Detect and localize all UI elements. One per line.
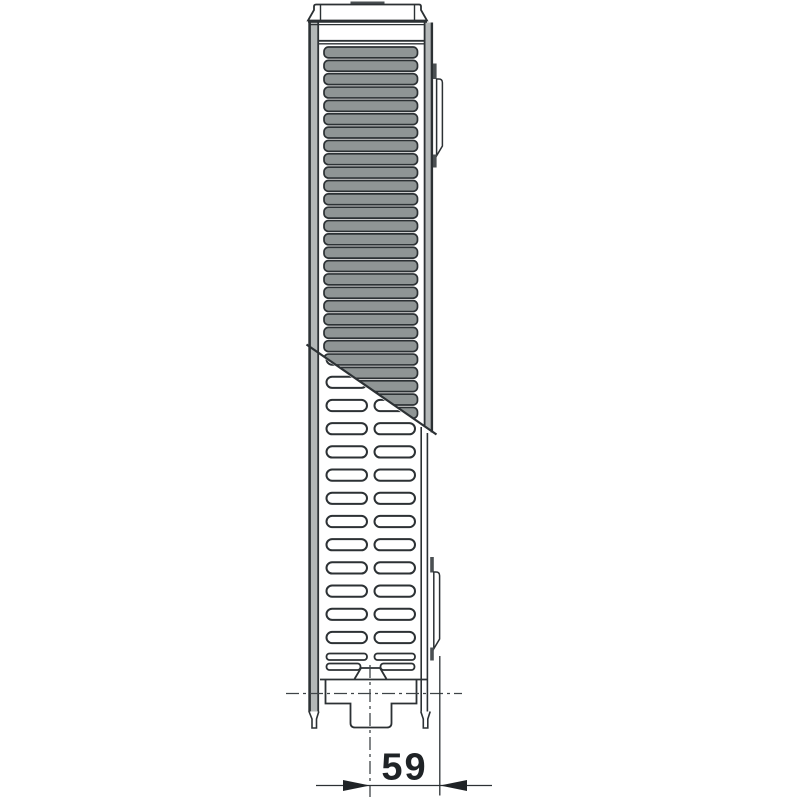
fin	[324, 341, 418, 352]
slot	[375, 586, 416, 597]
slot	[375, 516, 416, 527]
fin	[324, 287, 418, 298]
fin	[324, 87, 418, 98]
slot	[375, 632, 416, 643]
fin	[324, 47, 418, 58]
fin	[324, 60, 418, 71]
top-grille-cap	[308, 5, 427, 21]
fin	[324, 167, 418, 178]
slot	[327, 586, 368, 597]
fin	[324, 127, 418, 138]
bottom-profile	[326, 680, 417, 728]
fin	[324, 181, 418, 192]
bracket-hook	[433, 155, 437, 168]
fin	[324, 354, 418, 365]
slot	[327, 632, 368, 643]
slot	[375, 493, 416, 504]
radiator-technical-drawing: 59	[0, 0, 800, 800]
thin-slat	[327, 654, 368, 661]
thin-slat	[381, 664, 415, 671]
slot	[327, 539, 368, 550]
right-foot	[421, 712, 430, 729]
bracket-hook	[433, 64, 437, 80]
fin	[324, 301, 418, 312]
radiator-drawing-page: 59	[0, 0, 800, 800]
fin	[324, 114, 418, 125]
slot	[375, 562, 416, 573]
top-cap	[308, 2, 427, 44]
slot	[327, 562, 368, 573]
fin	[324, 100, 418, 111]
bracket-hook	[430, 648, 434, 661]
bracket-hook	[430, 557, 434, 573]
fin	[324, 274, 418, 285]
right-arrowhead-icon	[440, 780, 467, 791]
slot	[327, 470, 368, 481]
right-edge-strip-upper	[424, 23, 433, 433]
slot	[327, 609, 368, 620]
fin	[324, 314, 418, 325]
thin-slat	[375, 654, 416, 661]
slot	[375, 470, 416, 481]
fin	[324, 327, 418, 338]
slot	[327, 516, 368, 527]
thin-slat	[327, 664, 361, 671]
left-edge-strip	[309, 22, 319, 728]
fin	[324, 247, 418, 258]
fin	[324, 154, 418, 165]
slot	[375, 609, 416, 620]
slot	[327, 400, 368, 411]
slot	[375, 446, 416, 457]
wall-bracket-bottom	[430, 557, 439, 661]
slot	[327, 423, 368, 434]
slot	[375, 539, 416, 550]
fin	[324, 194, 418, 205]
slot	[327, 493, 368, 504]
slot	[327, 446, 368, 457]
left-foot	[309, 712, 319, 729]
dimension-value: 59	[381, 747, 427, 789]
bracket-body	[434, 572, 440, 649]
fin	[324, 140, 418, 151]
slot	[375, 423, 416, 434]
fin	[324, 221, 418, 232]
fin	[324, 74, 418, 85]
left-arrowhead-icon	[343, 780, 370, 791]
fin	[324, 261, 418, 272]
bracket-body	[437, 79, 443, 156]
fin	[324, 234, 418, 245]
wall-bracket-top	[433, 64, 442, 168]
fin	[324, 207, 418, 218]
